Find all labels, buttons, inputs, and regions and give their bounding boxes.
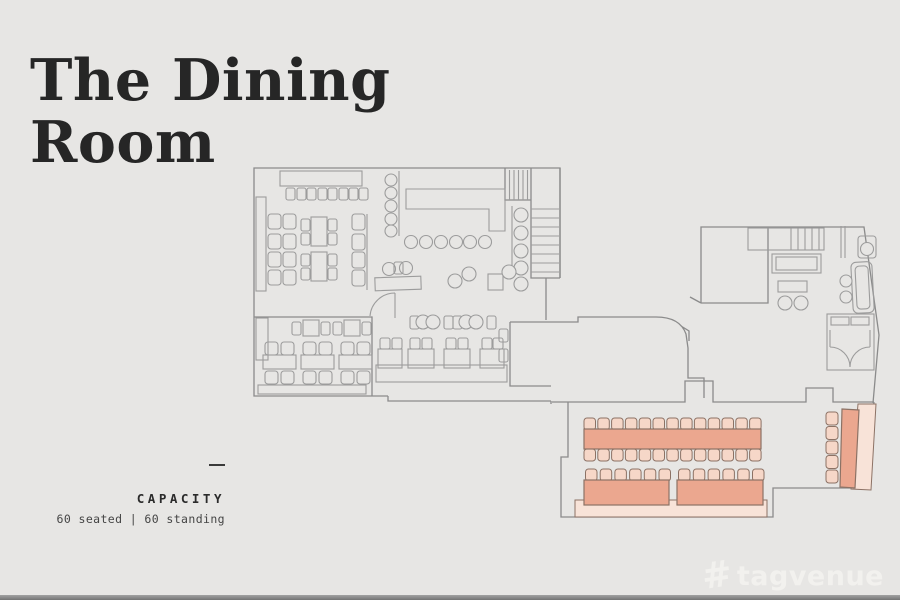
dining-chair (630, 469, 642, 481)
round-table-pairs (410, 315, 496, 329)
dining-chair (598, 418, 610, 430)
long-table-chairs-top (584, 418, 761, 430)
dining-chair (826, 441, 838, 454)
dining-chair (693, 469, 705, 481)
dining-chair (653, 449, 665, 461)
dining-chair (738, 469, 750, 481)
banquet-table-left (584, 480, 669, 505)
side-table (840, 409, 859, 488)
side-table-chairs (826, 412, 838, 483)
dining-chair (598, 449, 610, 461)
watermark: # tagvenue (702, 558, 884, 594)
dining-chair (723, 469, 735, 481)
banquet-table-right-chairs (679, 469, 765, 481)
dining-chair (708, 418, 720, 430)
capacity-value: 60 seated | 60 standing (40, 512, 225, 526)
lounge-area (370, 262, 528, 330)
dining-chair (653, 418, 665, 430)
banquet-table-left-chairs (586, 469, 671, 481)
dining-chair (694, 418, 706, 430)
dining-chair (625, 418, 637, 430)
mid-banquette-seating (376, 329, 508, 382)
dining-chair (600, 469, 612, 481)
capacity-block: CAPACITY 60 seated | 60 standing (40, 464, 225, 526)
dining-chair (681, 449, 693, 461)
dining-chair (736, 418, 748, 430)
double-doors (827, 314, 874, 370)
watermark-brand: tagvenue (737, 561, 884, 592)
dining-chair (826, 456, 838, 469)
dining-chair (584, 449, 596, 461)
dining-chair (753, 469, 765, 481)
dining-chair (639, 418, 651, 430)
center-tables (301, 217, 337, 281)
venue-floorplan-page: The Dining Room (0, 0, 900, 600)
dining-chair (722, 418, 734, 430)
dining-chair (694, 449, 706, 461)
dining-chair (586, 469, 598, 481)
lower-left-dining-area (256, 318, 372, 394)
dining-chair (750, 449, 762, 461)
bench-chairs (286, 188, 368, 200)
dining-chair (750, 418, 762, 430)
tagvenue-hash-logo-icon: # (699, 556, 734, 596)
dining-chair (681, 418, 693, 430)
upper-left-dining-area (256, 171, 368, 291)
bottom-edge-strip (0, 595, 900, 600)
dining-chair (584, 418, 596, 430)
dining-chair (644, 469, 656, 481)
kitchen-service-area (748, 226, 876, 370)
capacity-divider (209, 464, 225, 466)
dining-chair (659, 469, 671, 481)
dining-chair (667, 418, 679, 430)
dining-chair (639, 449, 651, 461)
dining-chair (826, 412, 838, 425)
dining-chair (615, 469, 627, 481)
dining-chair (826, 470, 838, 483)
dining-chair (612, 449, 624, 461)
dining-chair (708, 469, 720, 481)
dining-chair (625, 449, 637, 461)
long-table-chairs-bottom (584, 449, 761, 461)
banquet-table-right (677, 480, 763, 505)
dining-chair (736, 449, 748, 461)
highlighted-dining-room (575, 404, 876, 517)
dining-chair (679, 469, 691, 481)
dining-chair (722, 449, 734, 461)
capacity-label: CAPACITY (40, 491, 225, 506)
left-chair-clusters (268, 214, 296, 285)
dining-chair (667, 449, 679, 461)
dining-chair (708, 449, 720, 461)
dining-chair (826, 427, 838, 440)
long-table (584, 429, 761, 449)
dining-chair (612, 418, 624, 430)
right-chair-column (352, 214, 367, 290)
bar-area (385, 171, 528, 276)
